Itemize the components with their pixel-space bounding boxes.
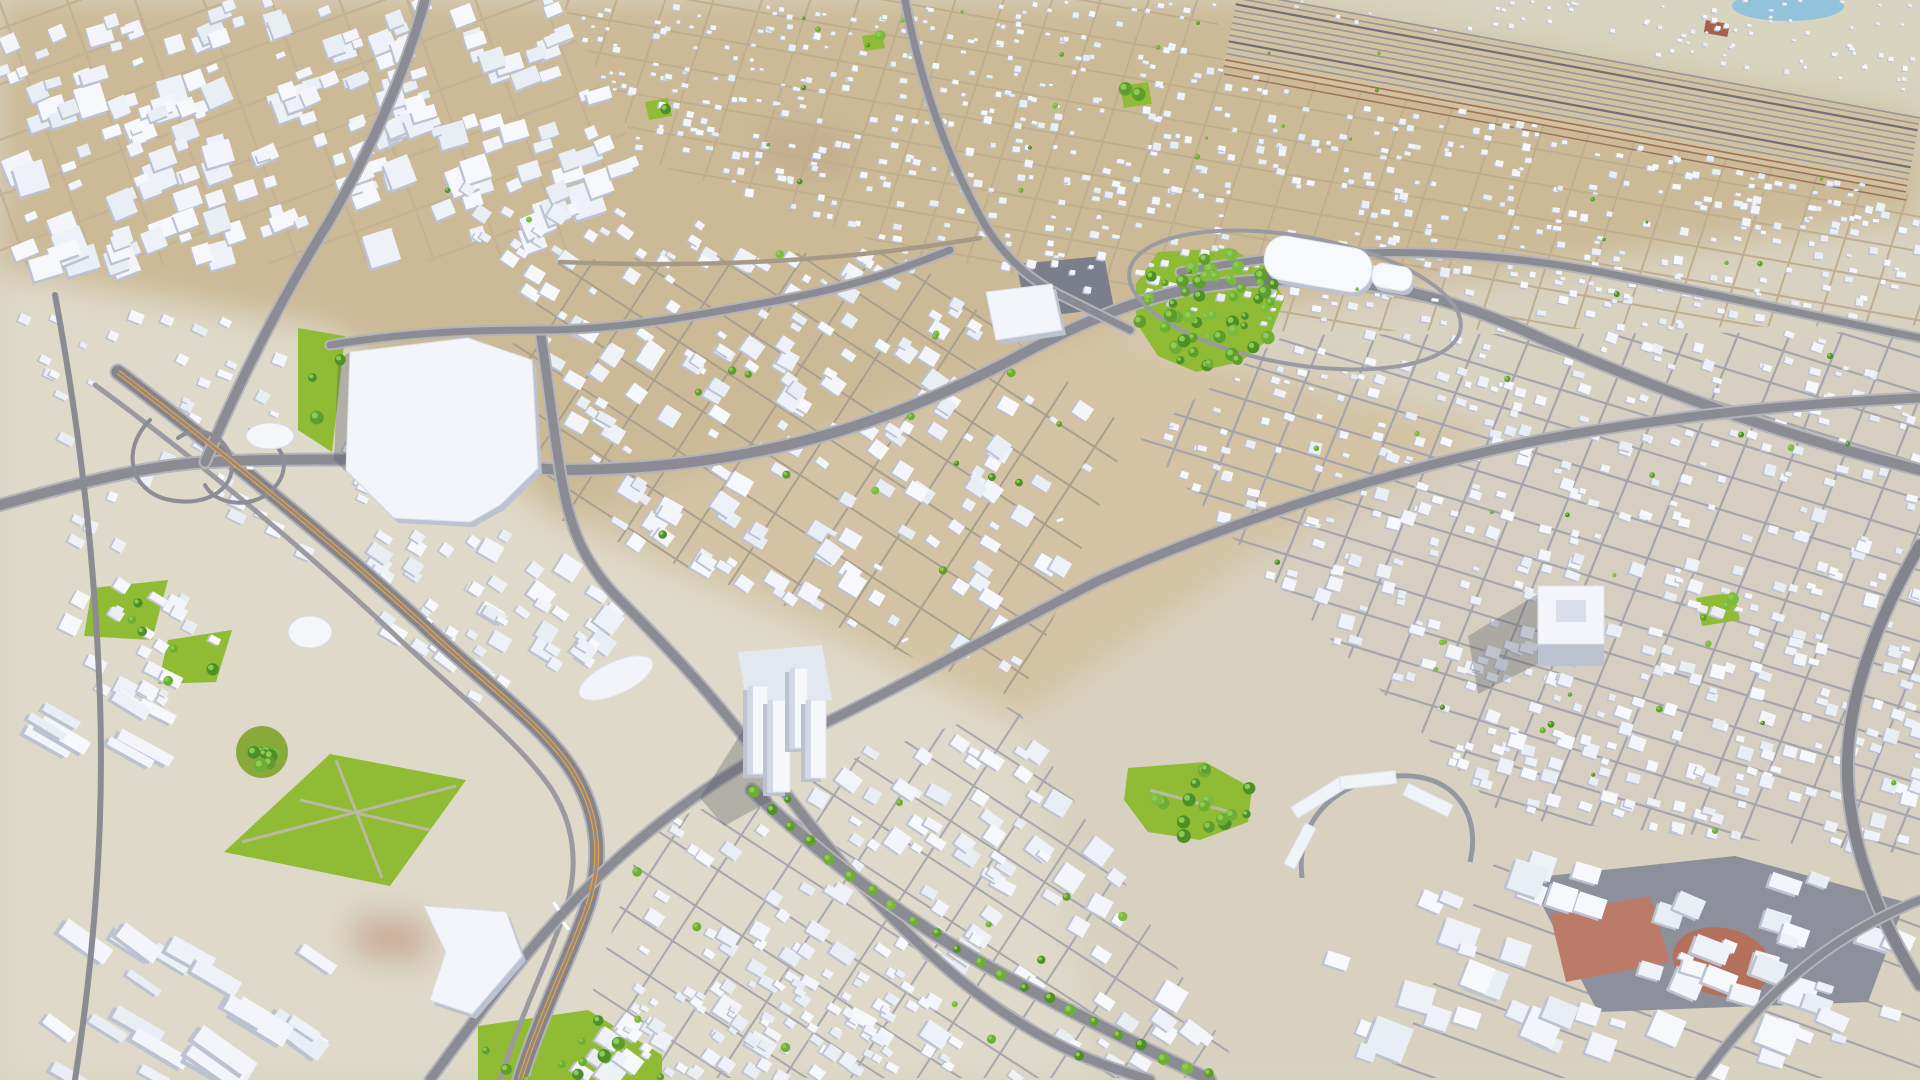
building [1520,143,1531,153]
building [1175,92,1185,102]
building [1150,196,1160,206]
building [743,188,754,199]
tree [1757,261,1763,267]
building [816,194,825,203]
building [1423,228,1432,237]
building [1678,227,1689,238]
building [681,118,692,128]
building [1115,186,1126,196]
building [1854,298,1864,308]
building [1082,286,1092,295]
building [735,167,745,176]
building [1215,293,1225,303]
building [1912,245,1920,257]
tree [801,85,806,90]
campus-rotunda [288,616,332,648]
building [1023,159,1034,169]
tree [1176,356,1184,364]
building [1749,205,1760,216]
vehicle [1431,298,1438,302]
tree [786,821,796,831]
building [1672,255,1684,266]
building [1151,142,1162,152]
city-3d-map-figure [0,0,1920,1080]
building [1049,123,1059,133]
tree [1275,559,1281,565]
dome-building [246,423,294,449]
tree [1433,667,1438,672]
tree [960,10,963,13]
dirt-patch-1 [352,915,432,962]
building [1461,265,1472,275]
building [1360,200,1370,210]
big-box-store [986,284,1062,340]
building [1095,251,1106,262]
building [1266,114,1277,124]
building [812,32,822,42]
tree [1188,270,1192,274]
building [1578,213,1588,223]
building [1254,145,1264,155]
building [1438,267,1450,279]
map-canvas[interactable] [0,0,1920,1080]
building [982,115,993,125]
vehicle [246,466,253,469]
tree [1267,51,1270,54]
shopping-mall-building [346,338,538,522]
